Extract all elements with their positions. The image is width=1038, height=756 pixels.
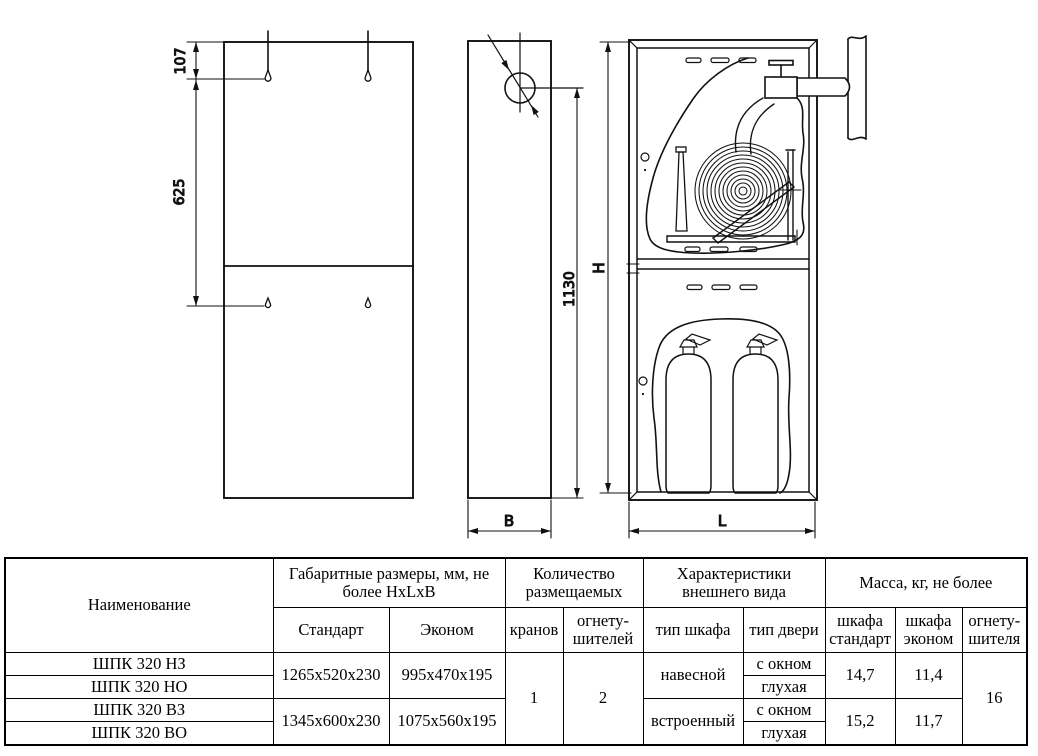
dimension-B: B [468,500,551,538]
header-appearance-group: Характеристики внешнего вида [643,558,825,608]
hose-nozzle [676,147,687,231]
header-mass-extinguisher: огнету- шителя [962,608,1027,653]
header-standard: Стандарт [273,608,389,653]
hole-axis-callout [488,35,539,117]
cabinet-type: навесной [643,653,743,699]
size-standard: 1265x520x230 [273,653,389,699]
fire-extinguisher-1 [666,334,711,493]
door-opening-outline [652,319,790,493]
size-econom: 1075x560x195 [389,699,505,746]
keyhole-top-right [365,70,371,81]
valve [765,61,797,99]
front-open-view: H [590,36,866,538]
row-name: ШПК 320 НО [5,676,273,699]
size-standard: 1345x600x230 [273,699,389,746]
header-econom: Эконом [389,608,505,653]
mass-econom: 11,4 [895,653,962,699]
dimension-L: L [629,502,815,538]
technical-drawing: 107 625 1130 [0,0,1038,556]
header-name: Наименование [5,558,273,653]
size-econom: 995x470x195 [389,653,505,699]
row-name: ШПК 320 ВЗ [5,699,273,722]
dimension-1130: 1130 [551,88,583,498]
keyhole-bottom-right [365,298,370,308]
mass-standard: 15,2 [825,699,895,746]
row-name: ШПК 320 НЗ [5,653,273,676]
dim-label-L: L [718,512,727,530]
page: 107 625 1130 [0,0,1038,756]
keyhole-top-left [265,70,271,81]
mass-extinguisher: 16 [962,653,1027,746]
header-dimensions-group: Габаритные размеры, мм, не более HxLxB [273,558,505,608]
cabinet-type: встроенный [643,699,743,746]
header-taps: кранов [505,608,563,653]
dim-label-B: B [504,512,514,530]
side-view: 1130 B [468,33,583,538]
dimension-625: 625 [172,79,264,306]
extinguishers-count: 2 [563,653,643,746]
header-mass-econom: шкафа эконом [895,608,962,653]
door-type: глухая [743,722,825,746]
header-cabinet-type: тип шкафа [643,608,743,653]
taps-count: 1 [505,653,563,746]
door-type: с окном [743,653,825,676]
dim-label-H: H [590,262,608,273]
door-type: с окном [743,699,825,722]
dim-label-1130: 1130 [562,271,578,307]
dimension-H: H [590,42,631,493]
header-door-type: тип двери [743,608,825,653]
dim-label-625: 625 [172,179,188,206]
header-extinguishers: огнету- шителей [563,608,643,653]
door-type: глухая [743,676,825,699]
dimension-107: 107 [173,42,264,79]
dim-label-107: 107 [173,48,189,75]
keyhole-bottom-left [265,298,270,308]
valve-handwheel [769,61,793,66]
wall-section [848,36,866,140]
spec-table: Наименование Габаритные размеры, мм, не … [4,557,1028,746]
row-name: ШПК 320 ВО [5,722,273,746]
header-quantity-group: Количество размещаемых [505,558,643,608]
supply-pipe [797,78,850,96]
mass-standard: 14,7 [825,653,895,699]
mass-econom: 11,7 [895,699,962,746]
header-mass-group: Масса, кг, не более [825,558,1027,608]
lock-holes [639,153,649,395]
fire-extinguisher-2 [733,334,778,493]
rear-panel-view: 107 625 [172,31,413,498]
header-mass-standard: шкафа стандарт [825,608,895,653]
